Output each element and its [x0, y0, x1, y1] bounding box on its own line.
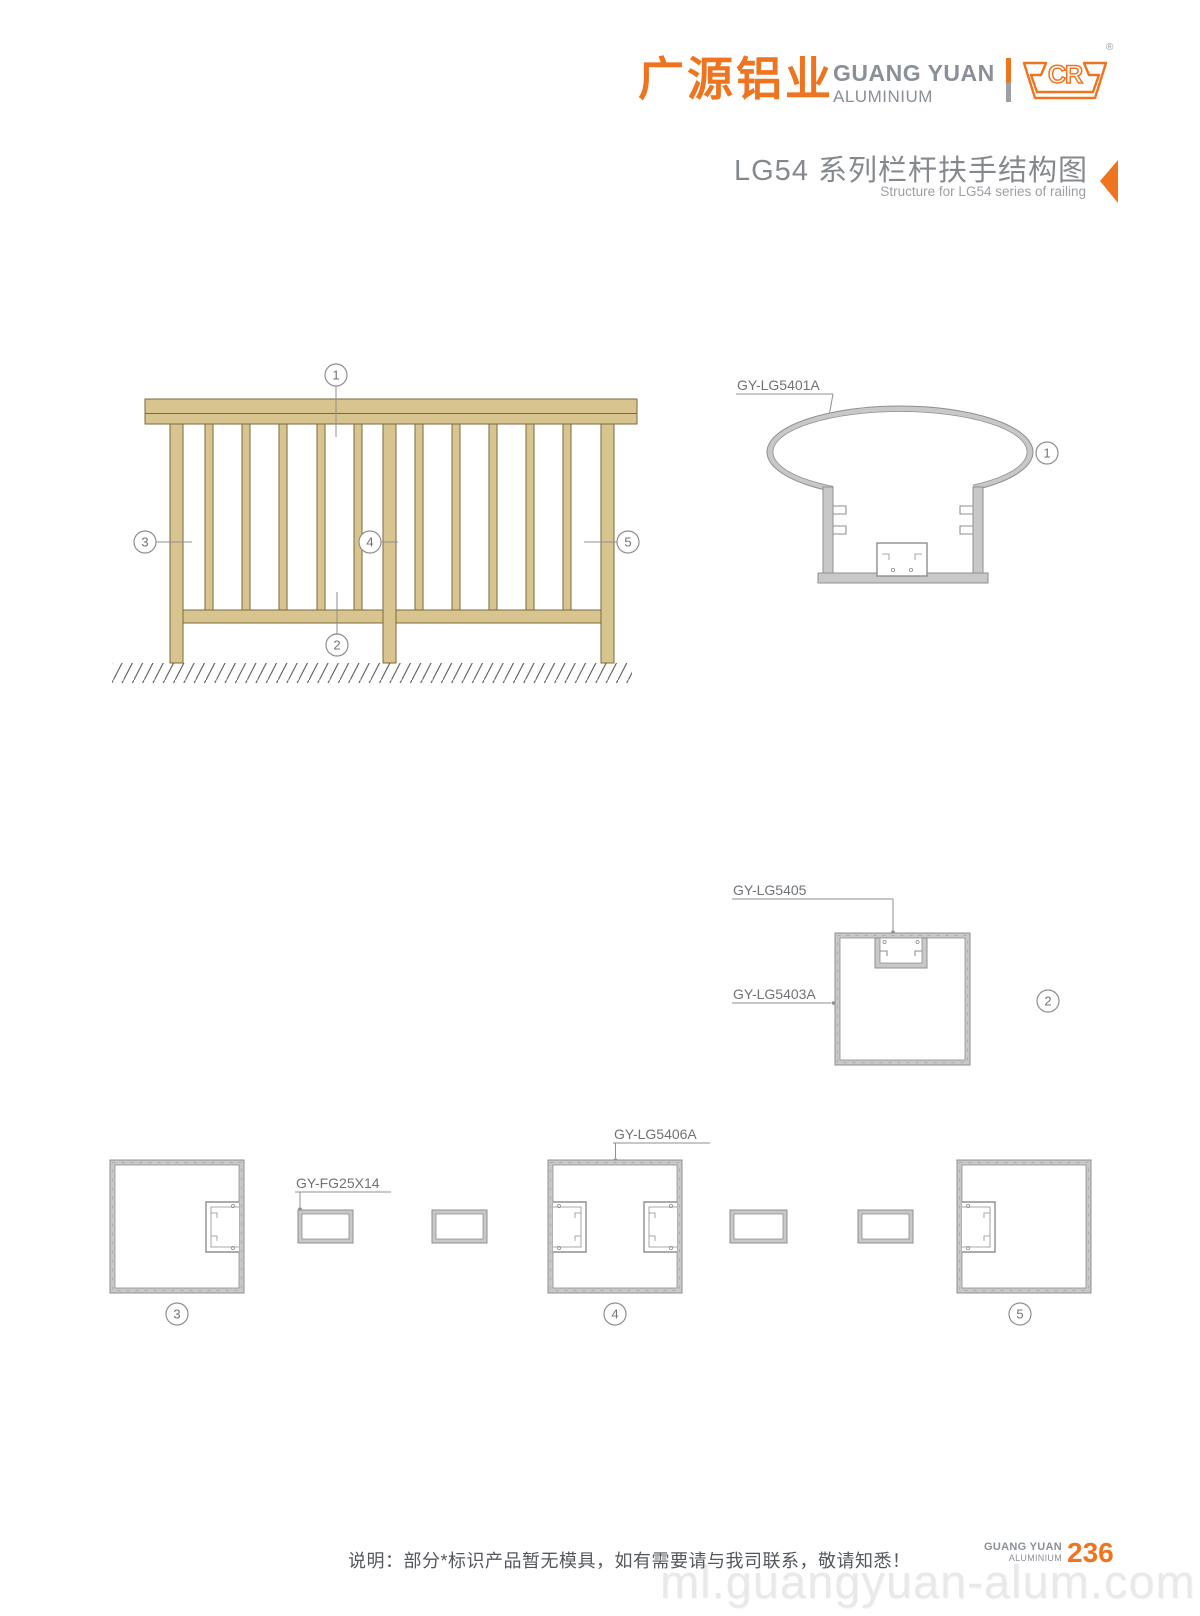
footer-brand-line1: GUANG YUAN	[984, 1541, 1062, 1553]
label-bottom-rail: GY-LG5403A	[733, 986, 816, 1002]
svg-text:1: 1	[1043, 446, 1050, 461]
posts	[170, 424, 614, 663]
footer-brand: GUANG YUAN ALUMINIUM	[984, 1541, 1062, 1563]
label-insert: GY-LG5405	[733, 882, 807, 898]
label-post: GY-LG5406A	[614, 1126, 697, 1142]
svg-text:3: 3	[173, 1307, 180, 1322]
footer-note: 说明：部分*标识产品暂无模具，如有需要请与我司联系，敬请知悉！	[348, 1547, 911, 1573]
catalog-page: 广源铝业 GUANG YUAN ALUMINIUM CR ® LG54 系列栏杆…	[0, 0, 1200, 1616]
svg-text:4: 4	[611, 1307, 618, 1322]
elevation-callout-2: 2	[326, 592, 348, 656]
label-flat-bar: GY-FG25X14	[296, 1175, 380, 1191]
svg-text:5: 5	[1016, 1307, 1023, 1322]
section-callout-5: 5	[1009, 1303, 1031, 1325]
svg-text:5: 5	[624, 535, 631, 550]
svg-text:3: 3	[141, 535, 148, 550]
section-callout-3: 3	[166, 1303, 188, 1325]
railing-elevation: 1 2 3 4 5	[112, 364, 639, 683]
footer-brand-line2: ALUMINIUM	[984, 1553, 1062, 1563]
top-rail	[145, 399, 637, 424]
svg-text:2: 2	[1044, 994, 1051, 1009]
ground-hatch	[112, 663, 632, 683]
svg-text:2: 2	[333, 638, 340, 653]
section-callout-2: 2	[1037, 990, 1059, 1012]
section-post-3	[110, 1160, 244, 1293]
section-post-5	[957, 1160, 1091, 1293]
section-handrail-profile: GY-LG5401A 1	[736, 377, 1058, 583]
section-callout-4: 4	[604, 1303, 626, 1325]
svg-text:4: 4	[366, 535, 373, 550]
section-post-row: GY-FG25X14 GY-LG5406A	[110, 1126, 1091, 1325]
section-callout-1: 1	[1036, 442, 1058, 464]
section-post-4	[548, 1160, 682, 1293]
svg-text:1: 1	[332, 368, 339, 383]
technical-drawing: 1 2 3 4 5 G	[0, 0, 1200, 1616]
page-number: 236	[1067, 1537, 1114, 1569]
label-handrail: GY-LG5401A	[737, 377, 820, 393]
section-bottom-rail-profile: GY-LG5405 GY-LG5403A 2	[732, 882, 1059, 1065]
